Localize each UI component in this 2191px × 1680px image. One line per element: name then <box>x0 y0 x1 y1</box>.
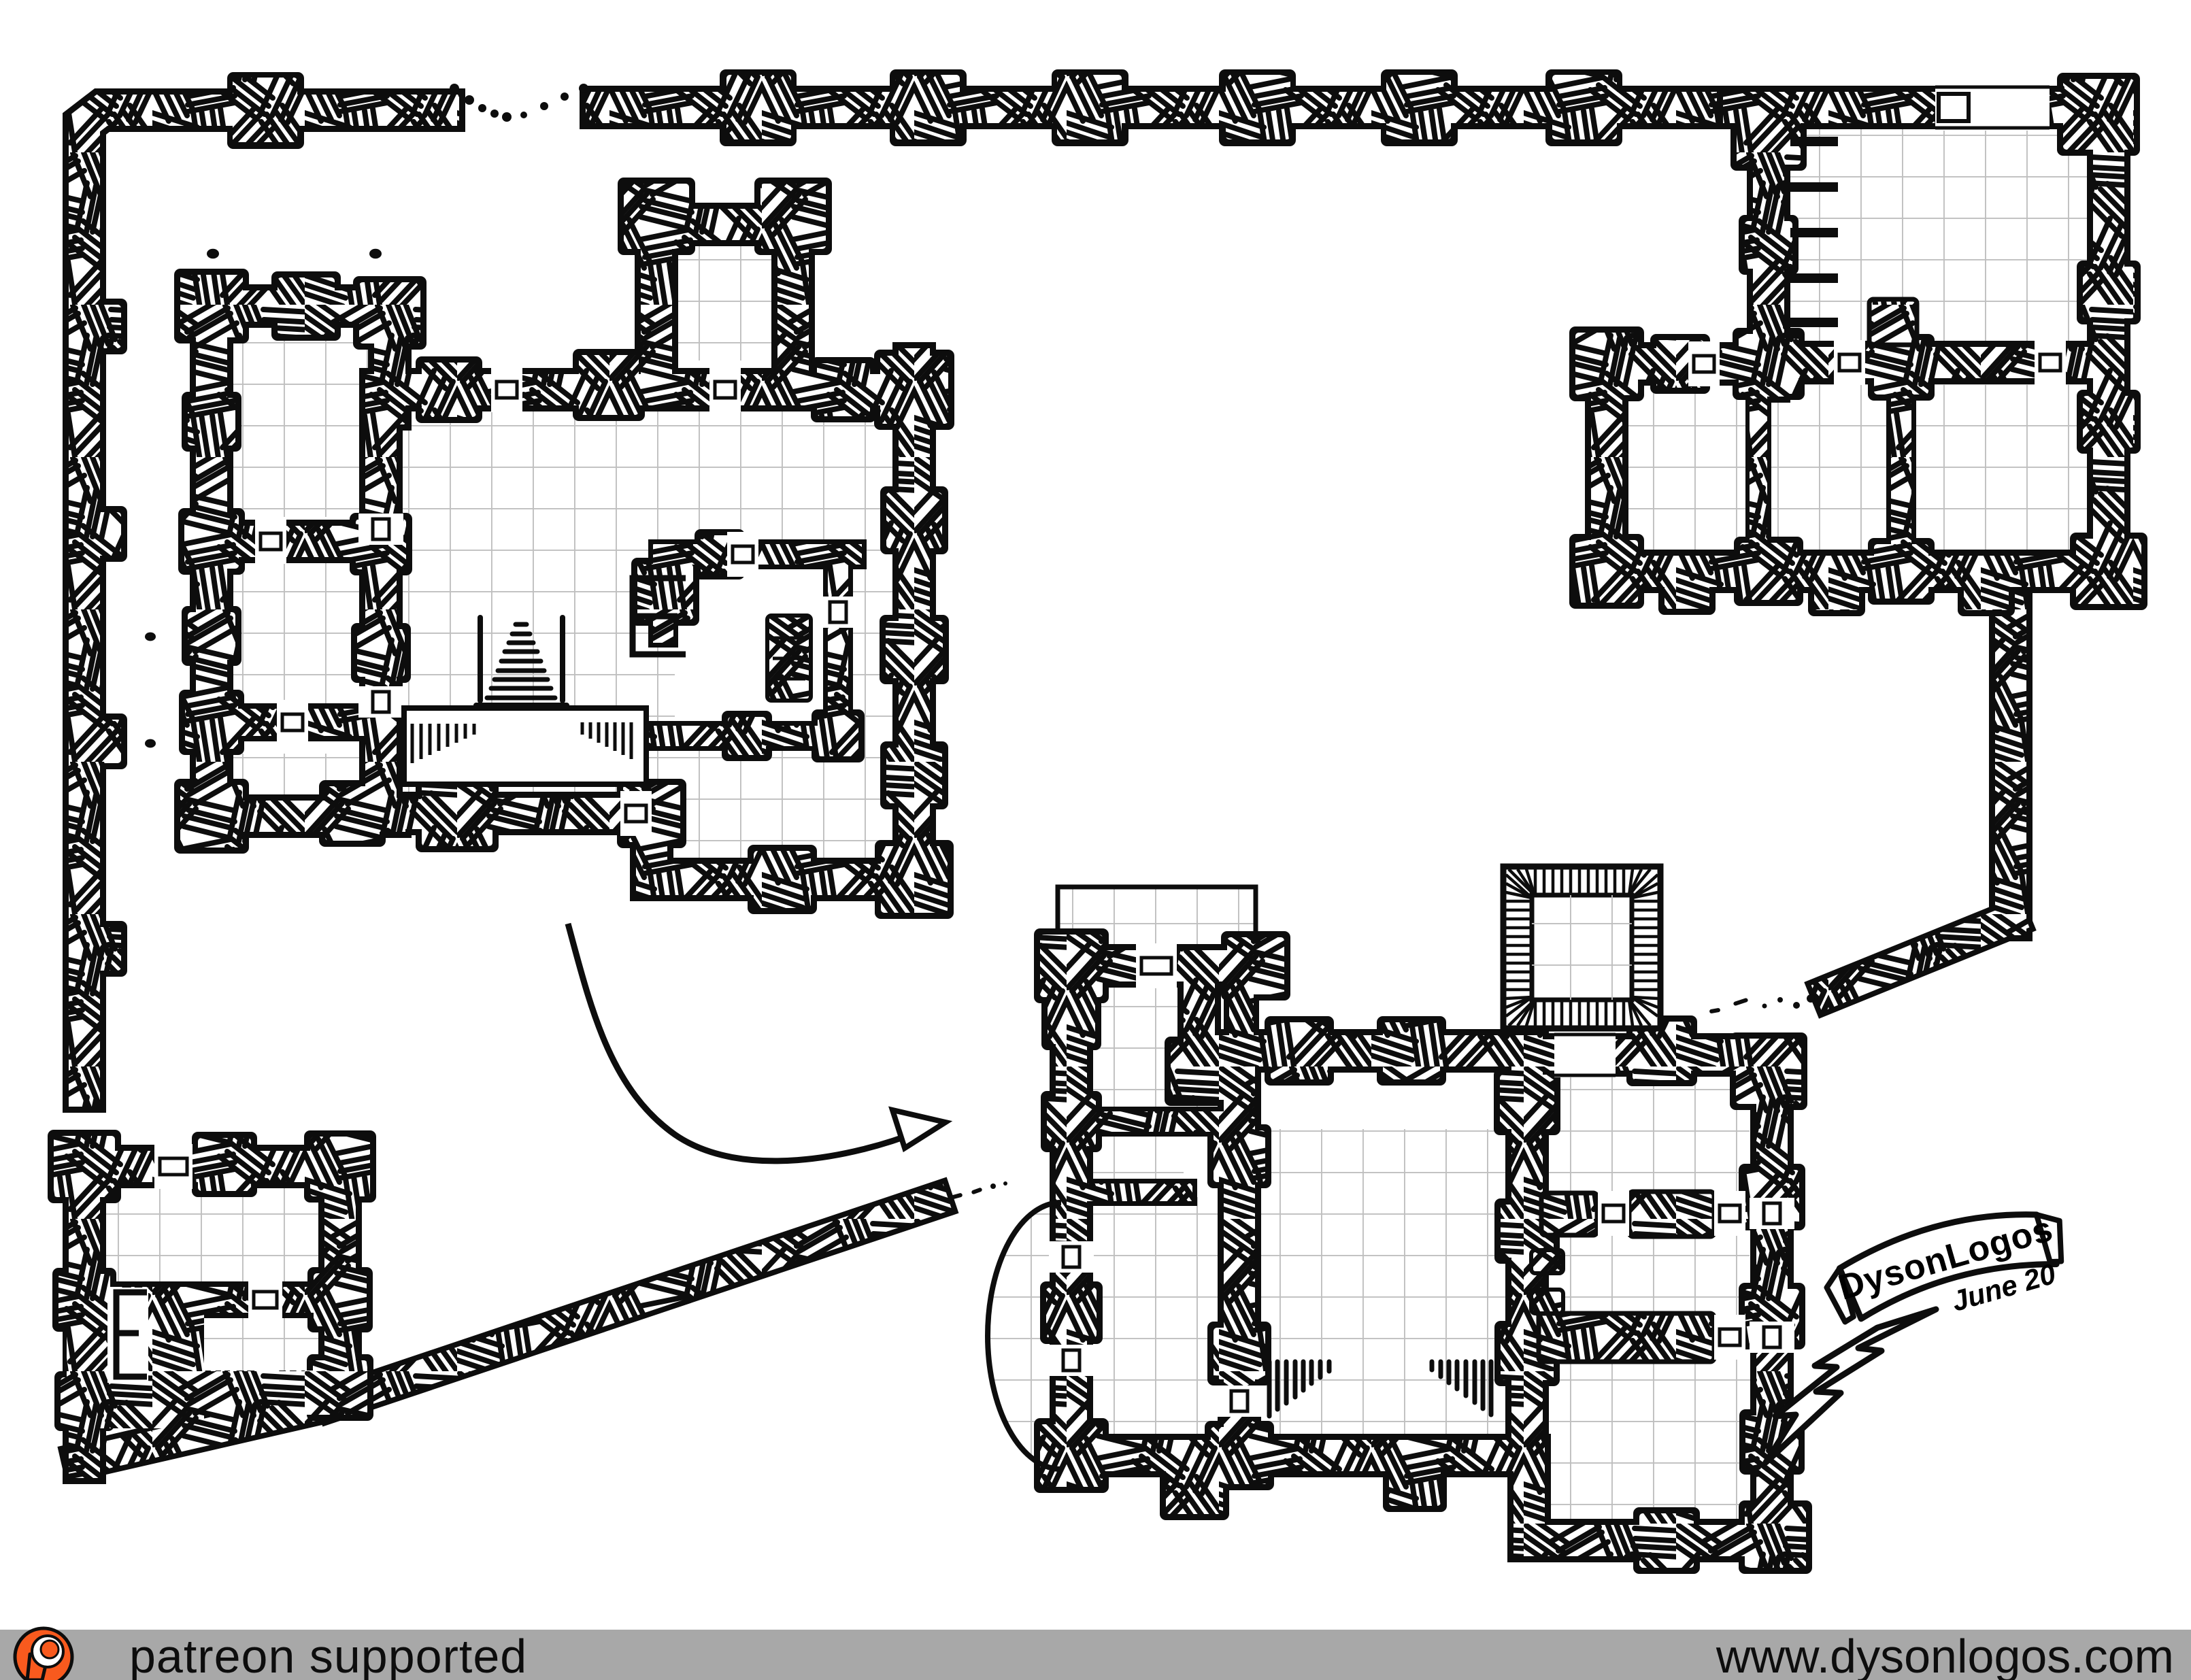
svg-text:www.dysonlogos.com: www.dysonlogos.com <box>1716 1630 2174 1680</box>
svg-text:patreon supported: patreon supported <box>129 1630 527 1680</box>
